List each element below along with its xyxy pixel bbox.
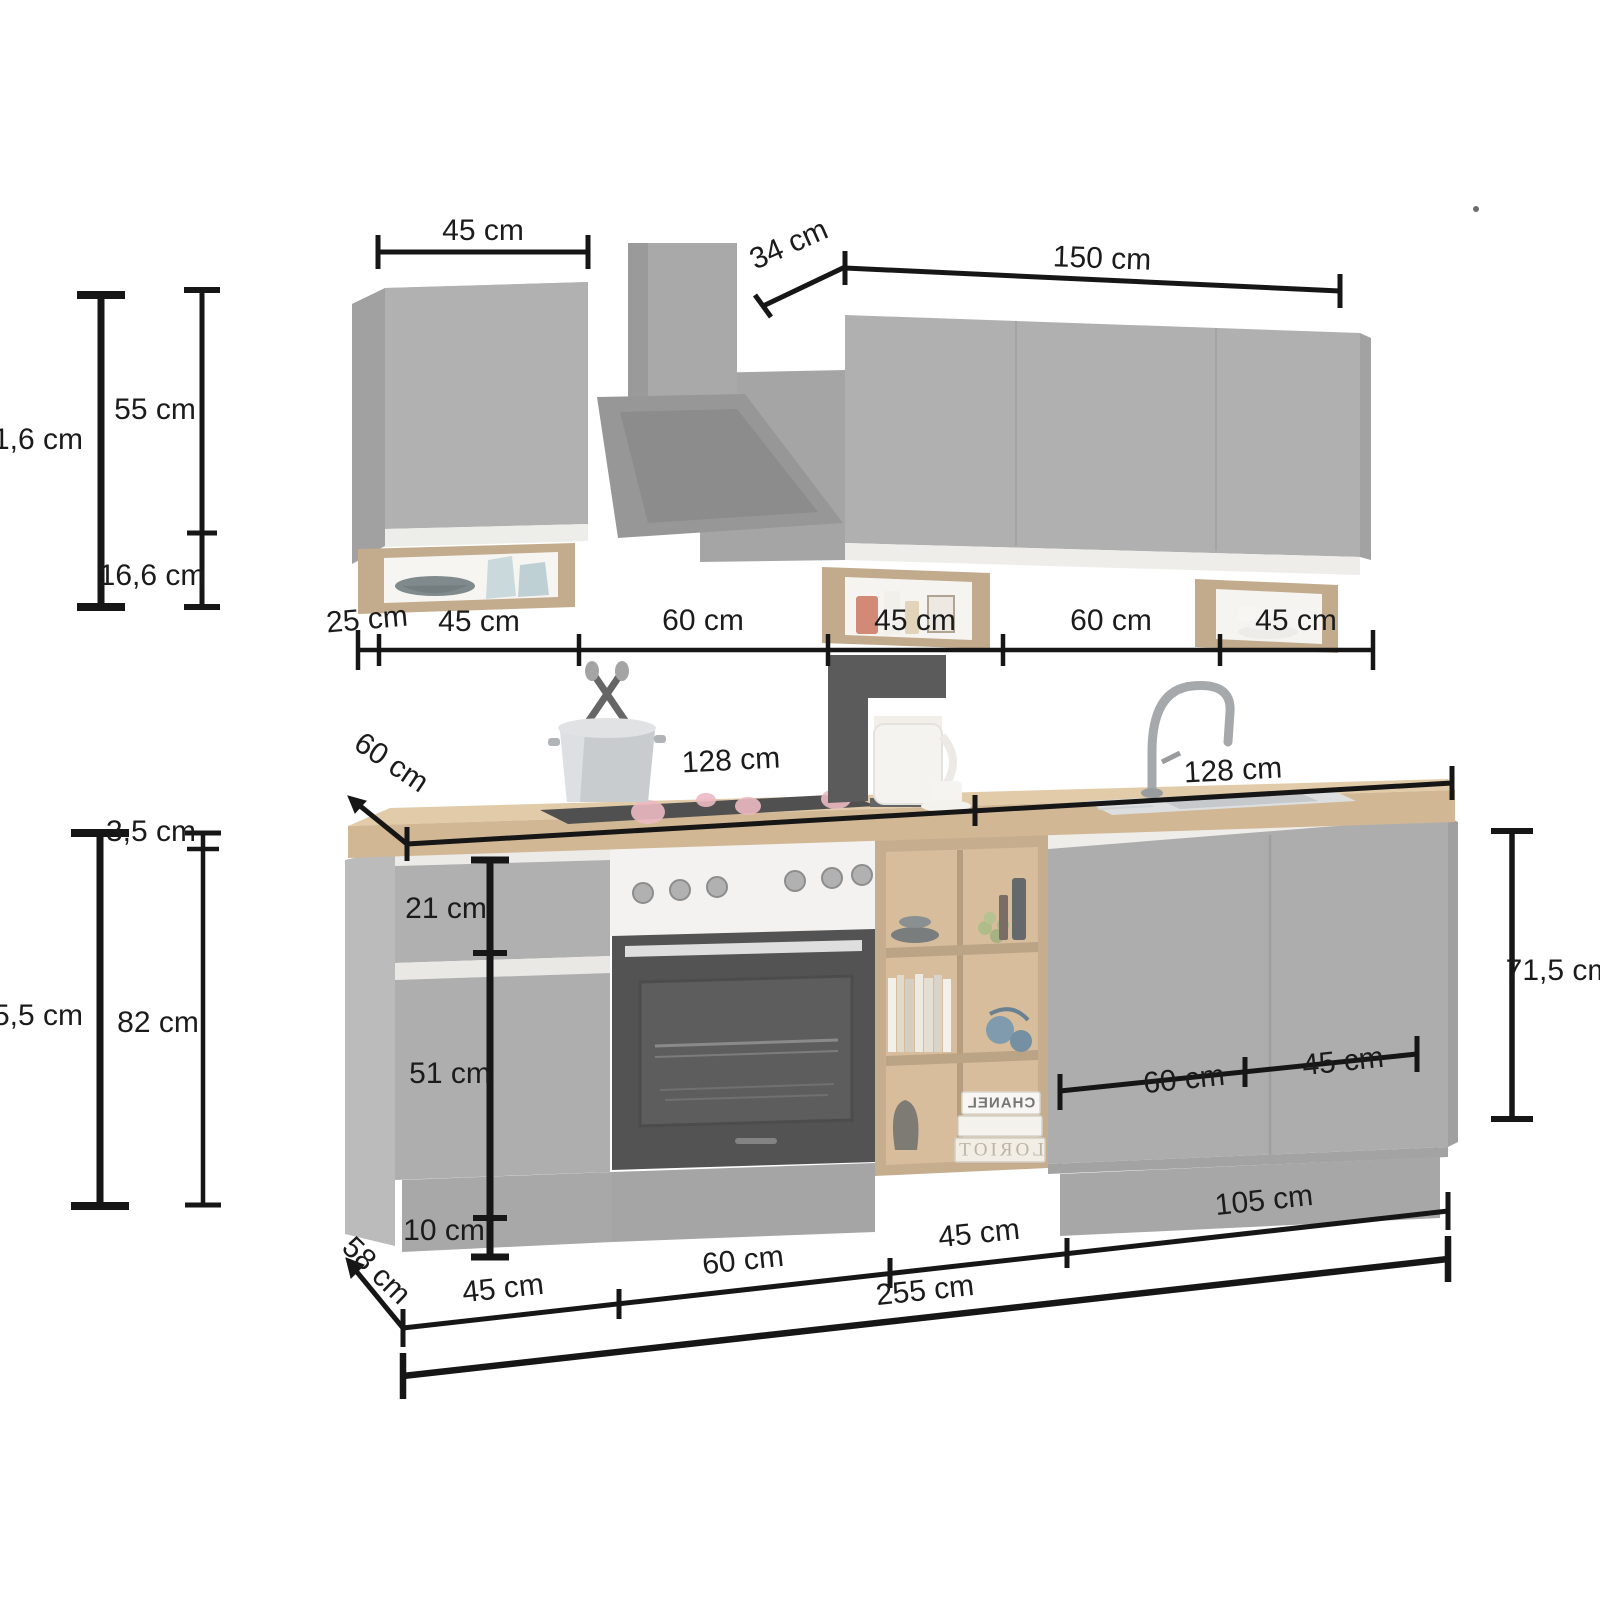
label-upper-row-60b: 60 cm [1070, 606, 1152, 636]
label-counter-left-width: 128 cm [681, 743, 781, 778]
label-upper-row-60a: 60 cm [662, 606, 744, 636]
label-upper-row-45c: 45 cm [1255, 606, 1337, 636]
dim-total-width [403, 1236, 1448, 1399]
wall-cabinet-right [822, 315, 1371, 653]
label-base-height-overall: 5,5 cm [0, 1001, 83, 1031]
label-upper-shelf-height: 16,6 cm [99, 561, 206, 591]
label-upper-cab-width: 45 cm [442, 216, 524, 246]
furniture-render [345, 206, 1479, 1252]
label-upper-row-25: 25 cm [325, 601, 409, 638]
coffee-maker [828, 655, 971, 812]
label-upper-right-width: 150 cm [1052, 242, 1151, 275]
label-drawer-height: 21 cm [405, 894, 487, 924]
stray-dot [1473, 206, 1479, 212]
label-right-height: 71,5 cm [1506, 956, 1600, 986]
dim-hood-depth [755, 267, 845, 317]
label-upper-row-45b: 45 cm [874, 606, 956, 636]
decor-book-title-top: CHANEL [967, 1096, 1036, 1111]
cooking-pot [548, 661, 666, 802]
label-upper-door-height: 55 cm [114, 395, 196, 425]
label-door-height: 51 cm [409, 1059, 491, 1089]
label-upper-row-45a: 45 cm [438, 607, 520, 637]
label-worktop-thickness: 3,5 cm [106, 817, 196, 847]
label-upper-height-overall: 1,6 cm [0, 425, 83, 455]
wall-cabinet-left [352, 282, 588, 614]
decor-book-title-bottom: LORIOT [956, 1141, 1044, 1160]
label-counter-right-width: 128 cm [1183, 753, 1283, 788]
kitchen-dimension-diagram: 45 cm 34 cm 150 cm 1,6 cm 55 cm 16,6 cm … [0, 0, 1600, 1600]
label-carcass-height: 82 cm [117, 1008, 199, 1038]
label-plinth-height: 10 cm [403, 1216, 485, 1246]
